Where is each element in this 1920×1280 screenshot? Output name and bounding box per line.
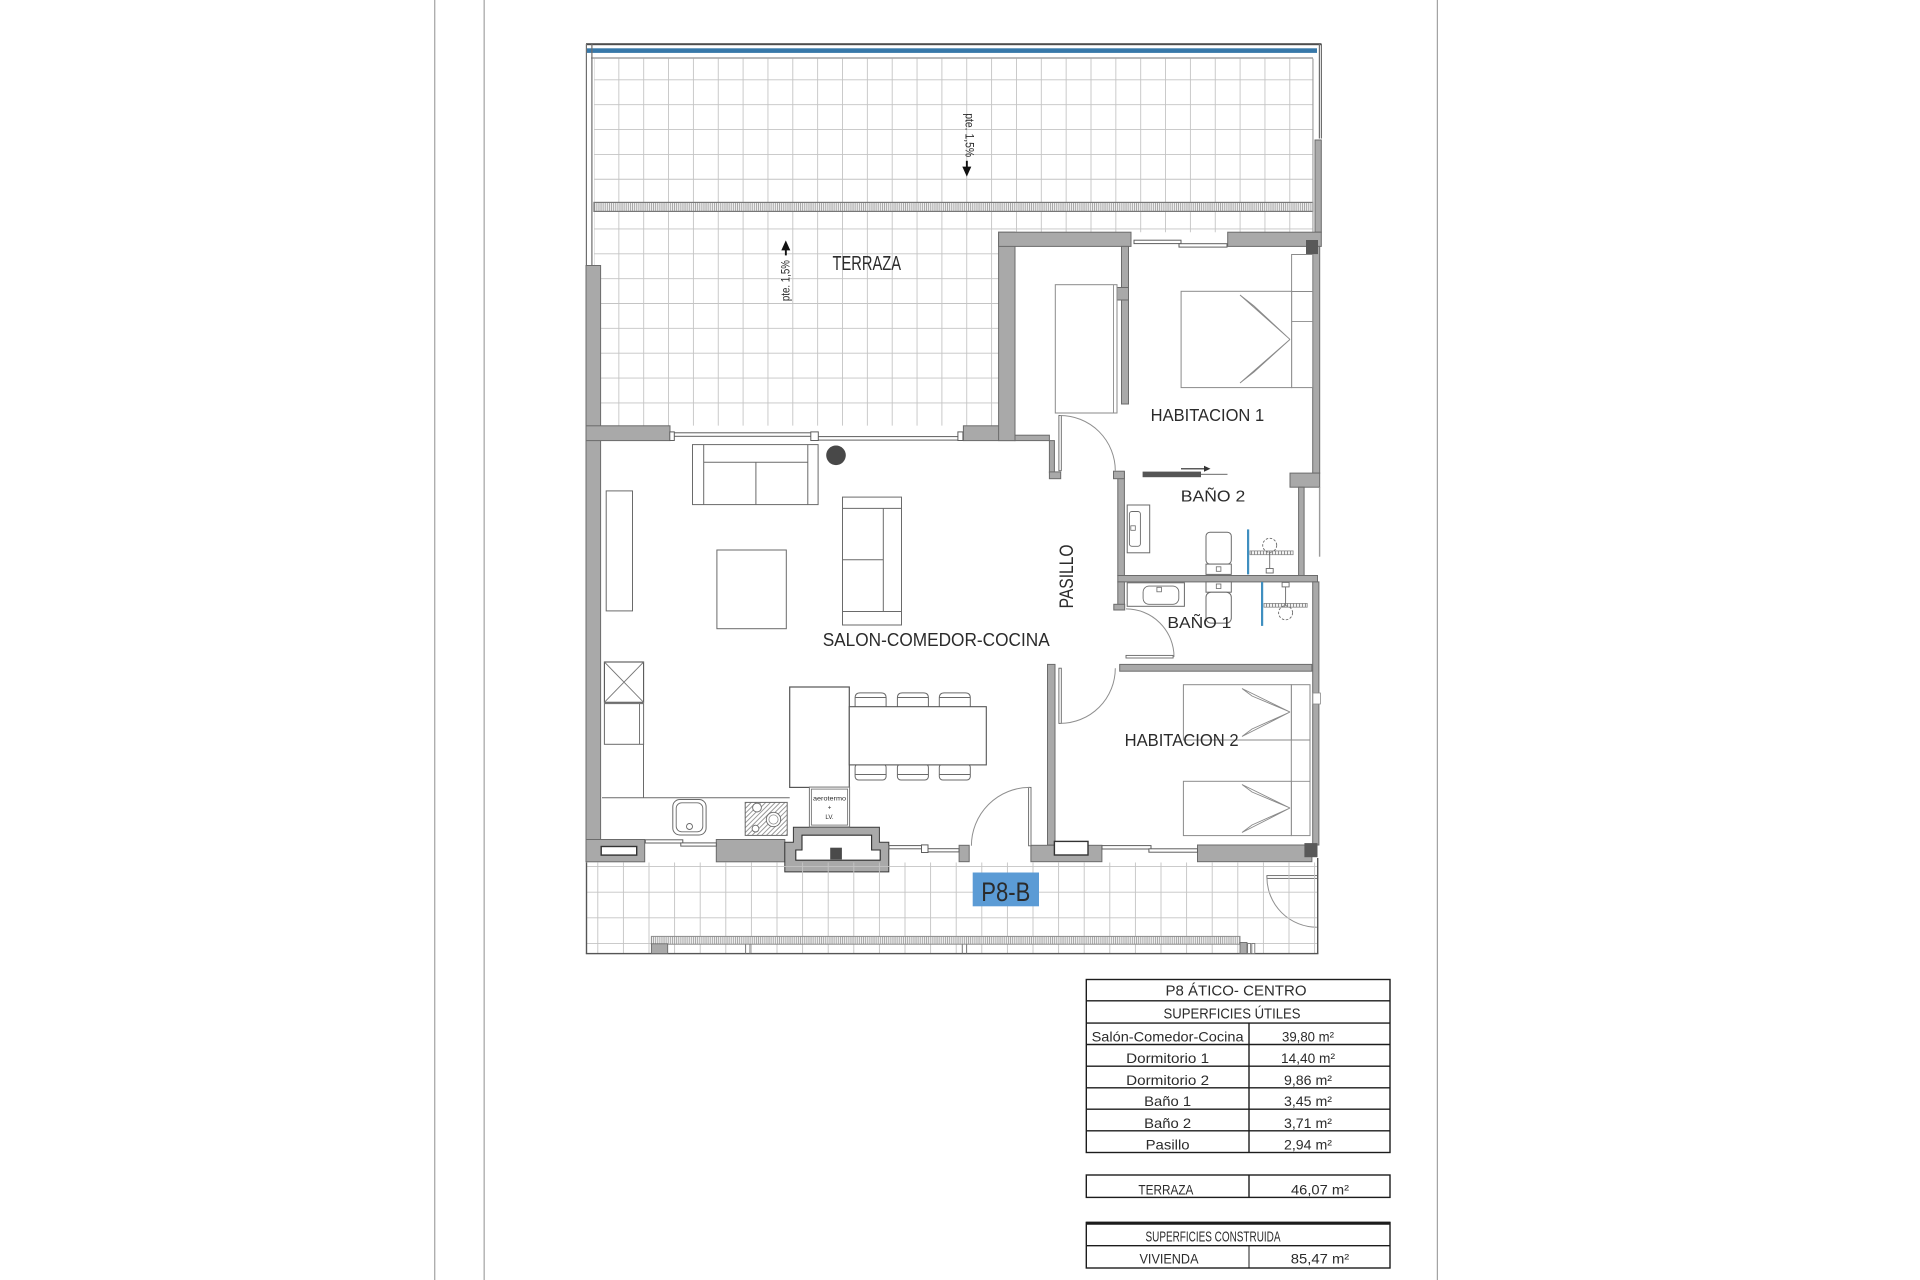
svg-text:VIVIENDA: VIVIENDA xyxy=(1140,1250,1200,1266)
svg-text:SALON-COMEDOR-COCINA: SALON-COMEDOR-COCINA xyxy=(823,630,1050,650)
svg-text:LV.: LV. xyxy=(825,814,834,821)
svg-text:46,07 m²: 46,07 m² xyxy=(1291,1181,1349,1197)
svg-text:Pasillo: Pasillo xyxy=(1146,1136,1190,1152)
svg-text:SUPERFICIES ÚTILES: SUPERFICIES ÚTILES xyxy=(1164,1006,1301,1023)
svg-text:Dormitorio 1: Dormitorio 1 xyxy=(1126,1050,1209,1066)
svg-text:pte. 1,5%: pte. 1,5% xyxy=(963,113,975,157)
svg-text:3,71 m²: 3,71 m² xyxy=(1284,1115,1332,1131)
svg-text:9,86 m²: 9,86 m² xyxy=(1284,1072,1332,1088)
svg-text:3,45 m²: 3,45 m² xyxy=(1284,1093,1332,1109)
svg-text:Baño 1: Baño 1 xyxy=(1144,1093,1191,1109)
svg-text:BAÑO 2: BAÑO 2 xyxy=(1181,486,1246,506)
svg-text:85,47 m²: 85,47 m² xyxy=(1291,1250,1350,1266)
svg-text:2,94 m²: 2,94 m² xyxy=(1284,1136,1332,1152)
svg-text:pte. 1,5%: pte. 1,5% xyxy=(780,260,792,301)
svg-text:Dormitorio 2: Dormitorio 2 xyxy=(1126,1072,1209,1088)
svg-text:Baño 2: Baño 2 xyxy=(1144,1115,1191,1131)
svg-text:TERRAZA: TERRAZA xyxy=(833,253,902,275)
svg-text:39,80 m²: 39,80 m² xyxy=(1282,1029,1334,1045)
svg-text:BAÑO 1: BAÑO 1 xyxy=(1167,612,1231,632)
svg-text:HABITACION 2: HABITACION 2 xyxy=(1125,730,1239,750)
svg-text:P8-B: P8-B xyxy=(981,877,1030,907)
svg-text:Salón-Comedor-Cocina: Salón-Comedor-Cocina xyxy=(1092,1029,1244,1045)
svg-text:HABITACION 1: HABITACION 1 xyxy=(1151,405,1265,425)
svg-text:aerotermo: aerotermo xyxy=(813,796,847,803)
svg-text:+: + xyxy=(828,805,832,812)
svg-text:SUPERFICIES CONSTRUIDA: SUPERFICIES CONSTRUIDA xyxy=(1146,1230,1281,1246)
svg-text:PASILLO: PASILLO xyxy=(1057,544,1078,608)
svg-text:P8 ÁTICO- CENTRO: P8 ÁTICO- CENTRO xyxy=(1166,983,1307,1000)
svg-text:TERRAZA: TERRAZA xyxy=(1138,1181,1194,1197)
svg-text:14,40 m²: 14,40 m² xyxy=(1281,1050,1335,1066)
